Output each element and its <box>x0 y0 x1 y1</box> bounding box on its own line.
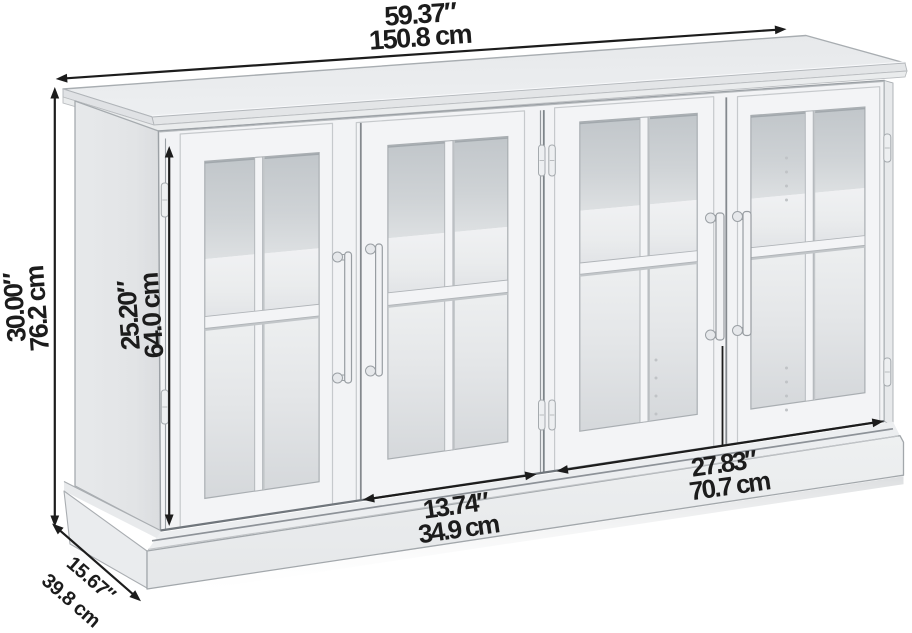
svg-text:76.2 cm: 76.2 cm <box>19 265 55 352</box>
svg-text:64.0 cm: 64.0 cm <box>134 272 170 359</box>
